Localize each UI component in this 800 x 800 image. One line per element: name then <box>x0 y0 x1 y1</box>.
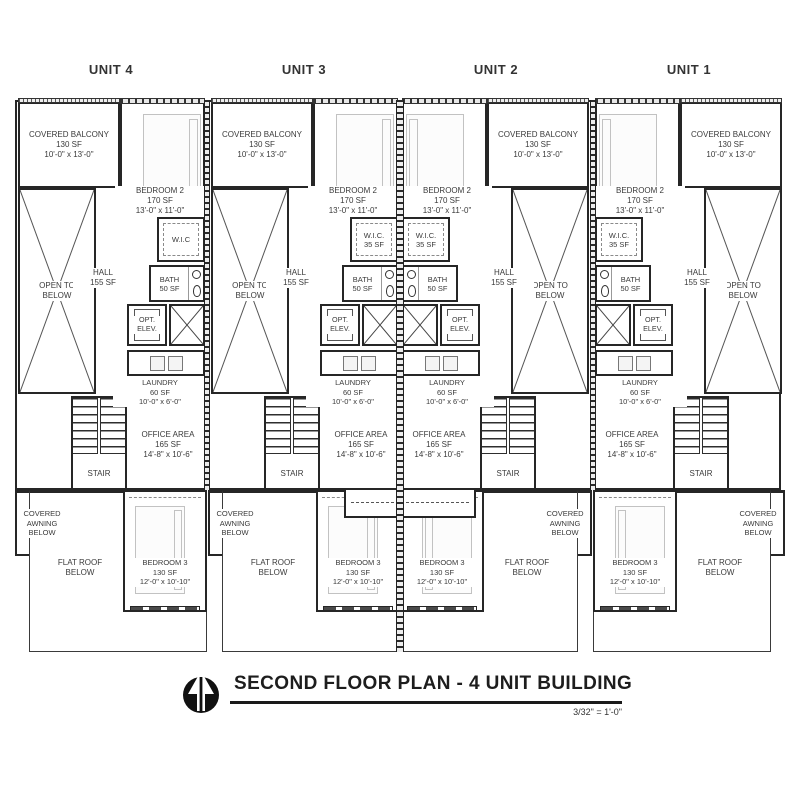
open-to-below-area: OPEN TOBELOW <box>511 188 589 394</box>
washer-icon <box>150 356 165 371</box>
laundry-room <box>402 350 480 376</box>
bedroom2-label: BEDROOM 2170 SF13'-0" x 11'-0" <box>402 186 492 217</box>
office-label: OFFICE AREA165 SF14'-8" x 10'-6" <box>593 430 671 461</box>
bath-fixtures <box>404 267 419 300</box>
laundry-label: LAUNDRY60 SF10'-0" x 6'-0" <box>400 378 494 407</box>
covered-balcony-room: COVERED BALCONY130 SF10'-0" x 13'-0" <box>680 102 782 188</box>
bedroom3-label: BEDROOM 3130 SF12'-0" x 10'-10" <box>318 558 398 587</box>
balcony-railing <box>18 98 120 103</box>
bedroom3-room: BEDROOM 3130 SF12'-0" x 10'-10" <box>123 490 207 612</box>
hall-label: HALL155 SF <box>667 268 727 288</box>
toilet-icon <box>193 285 201 297</box>
party-wall <box>204 100 210 490</box>
wic-closet: W.I.C <box>157 217 205 262</box>
bath-label: BATH50 SF <box>419 275 456 293</box>
bath-fixtures <box>188 267 203 300</box>
balcony-railing <box>487 98 589 103</box>
bath-label: BATH50 SF <box>151 275 188 293</box>
room-name: COVERED BALCONY <box>29 130 109 140</box>
room-dims: 10'-0" x 13'-0" <box>29 150 109 160</box>
stair-room: STAIR <box>480 396 536 490</box>
bedroom3-window <box>407 606 477 611</box>
open-to-below-area: OPEN TOBELOW <box>18 188 96 394</box>
bedroom2-window <box>120 98 205 104</box>
open-to-below-area: OPEN TOBELOW <box>211 188 289 394</box>
bedroom2-window <box>313 98 398 104</box>
open-to-below-label: OPEN TOBELOW <box>725 281 761 301</box>
bath-room: BATH50 SF <box>342 265 398 302</box>
bedroom3-room: BEDROOM 3130 SF12'-0" x 10'-10" <box>593 490 677 612</box>
bedroom2-label: BEDROOM 2170 SF13'-0" x 11'-0" <box>595 186 685 217</box>
elevator-label: OPT.ELEV. <box>322 306 358 344</box>
hall-label: HALL155 SF <box>474 268 534 288</box>
flat-roof-label: FLAT ROOFBELOW <box>683 558 757 578</box>
covered-balcony-room: COVERED BALCONY130 SF10'-0" x 13'-0" <box>487 102 589 188</box>
stair-rail <box>97 398 101 454</box>
floor-plan-drawing: COVERED BALCONY130 SF10'-0" x 13'-0" BED… <box>15 98 785 656</box>
bedroom3-label: BEDROOM 3130 SF12'-0" x 10'-10" <box>125 558 205 587</box>
stair-label: STAIR <box>73 469 125 479</box>
sink-icon <box>385 270 394 279</box>
room-area: 130 SF <box>29 140 109 150</box>
canopy-dashed-line <box>351 502 469 503</box>
bath-room: BATH50 SF <box>149 265 205 302</box>
north-arrow-icon <box>180 669 224 717</box>
bedroom3-label: BEDROOM 3130 SF12'-0" x 10'-10" <box>402 558 482 587</box>
stair-rail <box>699 398 703 454</box>
open-to-below-label: OPEN TOBELOW <box>232 281 268 301</box>
unit-1-label: UNIT 1 <box>593 62 785 77</box>
flat-roof-label: FLAT ROOFBELOW <box>236 558 310 578</box>
stair-label: STAIR <box>266 469 318 479</box>
laundry-label: LAUNDRY60 SF10'-0" x 6'-0" <box>113 378 207 407</box>
stair-label: STAIR <box>482 469 534 479</box>
wic-closet: W.I.C.35 SF <box>350 217 398 262</box>
laundry-label: LAUNDRY60 SF10'-0" x 6'-0" <box>306 378 400 407</box>
awning-label: COVEREDAWNINGBELOW <box>739 509 776 538</box>
stair-room: STAIR <box>673 396 729 490</box>
wic-label: W.I.C.35 SF <box>597 219 641 260</box>
unit-4-plan: COVERED BALCONY130 SF10'-0" x 13'-0" BED… <box>15 98 207 654</box>
awning-label: COVEREDAWNINGBELOW <box>216 509 253 538</box>
wic-label: W.I.C.35 SF <box>352 219 396 260</box>
drawing-title: SECOND FLOOR PLAN - 4 UNIT BUILDING <box>234 673 632 695</box>
party-wall <box>590 100 596 490</box>
bath-label: BATH50 SF <box>344 275 381 293</box>
dryer-icon <box>361 356 376 371</box>
flat-roof-label: FLAT ROOFBELOW <box>43 558 117 578</box>
wic-label: W.I.C <box>159 219 203 260</box>
covered-balcony-room: COVERED BALCONY130 SF10'-0" x 13'-0" <box>211 102 313 188</box>
laundry-room <box>127 350 205 376</box>
sink-icon <box>192 270 201 279</box>
office-label: OFFICE AREA165 SF14'-8" x 10'-6" <box>322 430 400 461</box>
sink-icon <box>600 270 609 279</box>
elevator-shaft <box>402 304 438 346</box>
unit-4-label: UNIT 4 <box>15 62 207 77</box>
laundry-room <box>320 350 398 376</box>
elevator-shaft <box>169 304 205 346</box>
office-label: OFFICE AREA165 SF14'-8" x 10'-6" <box>129 430 207 461</box>
elevator-label: OPT.ELEV. <box>635 306 671 344</box>
elevator-shaft <box>595 304 631 346</box>
wic-label: W.I.C.35 SF <box>404 219 448 260</box>
stair-rail <box>290 398 294 454</box>
center-party-wall <box>396 100 404 652</box>
dryer-icon <box>636 356 651 371</box>
title-underline <box>230 701 622 704</box>
shaft-cross-icon <box>597 306 629 344</box>
bath-room: BATH50 SF <box>595 265 651 302</box>
stair-label: STAIR <box>675 469 727 479</box>
hall-label: HALL155 SF <box>266 268 326 288</box>
stair-room: STAIR <box>264 396 320 490</box>
closet-dashed-line <box>129 497 201 498</box>
bedroom3-label: BEDROOM 3130 SF12'-0" x 10'-10" <box>595 558 675 587</box>
optional-elevator: OPT.ELEV. <box>127 304 167 346</box>
unit-2-label: UNIT 2 <box>400 62 592 77</box>
shaft-cross-icon <box>364 306 396 344</box>
optional-elevator: OPT.ELEV. <box>320 304 360 346</box>
washer-icon <box>425 356 440 371</box>
office-label: OFFICE AREA165 SF14'-8" x 10'-6" <box>400 430 478 461</box>
open-to-below-label: OPEN TOBELOW <box>39 281 75 301</box>
wic-closet: W.I.C.35 SF <box>595 217 643 262</box>
unit-3-label: UNIT 3 <box>208 62 400 77</box>
wic-closet: W.I.C.35 SF <box>402 217 450 262</box>
elevator-label: OPT.ELEV. <box>129 306 165 344</box>
stair-rail <box>506 398 510 454</box>
bath-fixtures <box>597 267 612 300</box>
optional-elevator: OPT.ELEV. <box>633 304 673 346</box>
bath-room: BATH50 SF <box>402 265 458 302</box>
drawing-scale: 3/32" = 1'-0" <box>480 707 622 717</box>
balcony-railing <box>211 98 313 103</box>
laundry-label: LAUNDRY60 SF10'-0" x 6'-0" <box>593 378 687 407</box>
dryer-icon <box>168 356 183 371</box>
bath-fixtures <box>381 267 396 300</box>
toilet-icon <box>601 285 609 297</box>
awning-label: COVEREDAWNINGBELOW <box>23 509 60 538</box>
laundry-room <box>595 350 673 376</box>
washer-icon <box>618 356 633 371</box>
stair-room: STAIR <box>71 396 127 490</box>
bedroom2-window <box>402 98 487 104</box>
bedroom3-window <box>130 606 200 611</box>
unit-3-plan: COVERED BALCONY130 SF10'-0" x 13'-0" BED… <box>208 98 400 654</box>
bedroom2-label: BEDROOM 2170 SF13'-0" x 11'-0" <box>115 186 205 217</box>
entry-canopy-below <box>344 488 476 518</box>
closet-dashed-line <box>599 497 671 498</box>
bedroom3-window <box>323 606 393 611</box>
hall-label: HALL155 SF <box>73 268 133 288</box>
sink-icon <box>407 270 416 279</box>
toilet-icon <box>408 285 416 297</box>
unit-2-plan: COVERED BALCONY130 SF10'-0" x 13'-0" BED… <box>400 98 592 654</box>
bedroom2-window <box>595 98 680 104</box>
washer-icon <box>343 356 358 371</box>
awning-label: COVEREDAWNINGBELOW <box>546 509 583 538</box>
shaft-cross-icon <box>171 306 203 344</box>
bedroom2-label: BEDROOM 2170 SF13'-0" x 11'-0" <box>308 186 398 217</box>
elevator-label: OPT.ELEV. <box>442 306 478 344</box>
optional-elevator: OPT.ELEV. <box>440 304 480 346</box>
bath-label: BATH50 SF <box>612 275 649 293</box>
balcony-railing <box>680 98 782 103</box>
covered-balcony-room: COVERED BALCONY130 SF10'-0" x 13'-0" <box>18 102 120 188</box>
shaft-cross-icon <box>404 306 436 344</box>
bedroom3-window <box>600 606 670 611</box>
unit-1-plan: COVERED BALCONY130 SF10'-0" x 13'-0" BED… <box>593 98 785 654</box>
open-to-below-label: OPEN TOBELOW <box>532 281 568 301</box>
dryer-icon <box>443 356 458 371</box>
open-to-below-area: OPEN TOBELOW <box>704 188 782 394</box>
elevator-shaft <box>362 304 398 346</box>
toilet-icon <box>386 285 394 297</box>
flat-roof-label: FLAT ROOFBELOW <box>490 558 564 578</box>
